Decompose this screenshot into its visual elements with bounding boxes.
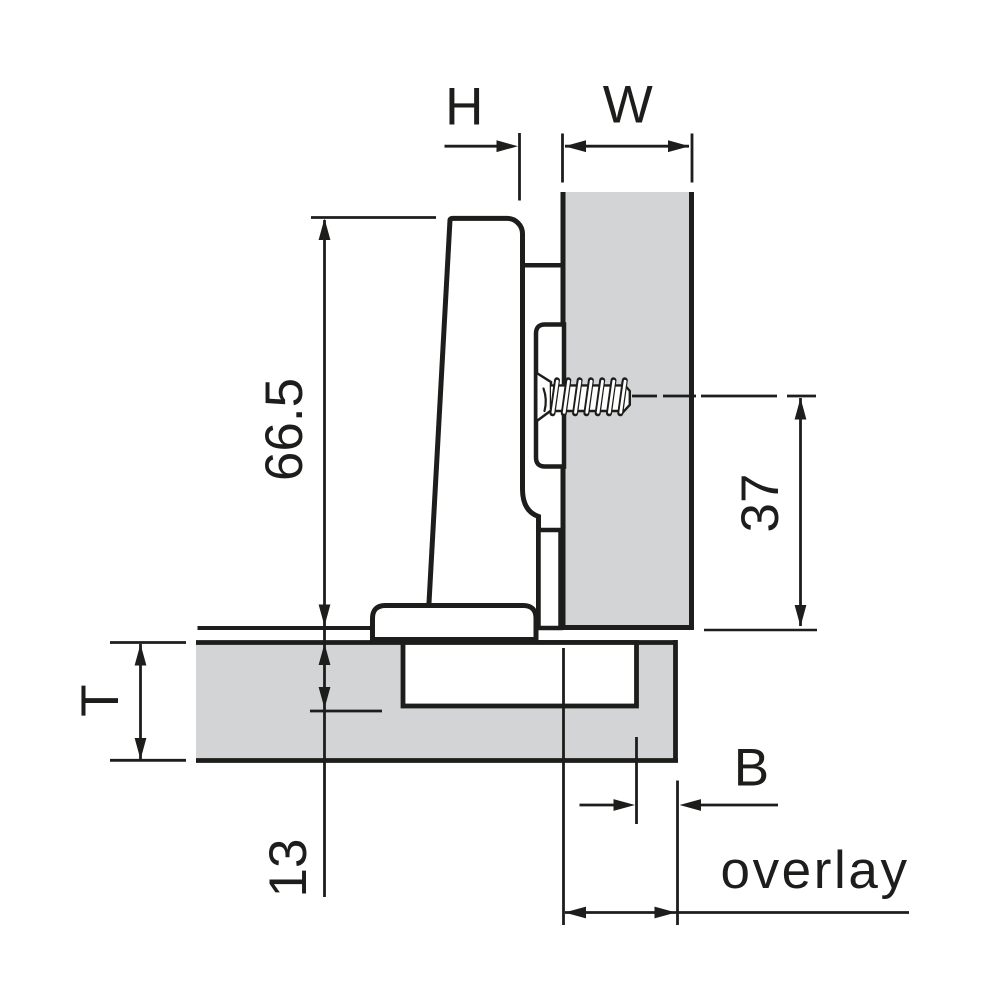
svg-text:T: T [71, 684, 130, 716]
svg-text:W: W [603, 76, 653, 135]
svg-text:37: 37 [731, 474, 790, 533]
svg-text:H: H [445, 77, 483, 136]
svg-text:13: 13 [259, 839, 318, 898]
svg-text:B: B [734, 738, 769, 797]
svg-text:66.5: 66.5 [255, 378, 314, 481]
svg-text:overlay: overlay [721, 841, 910, 900]
